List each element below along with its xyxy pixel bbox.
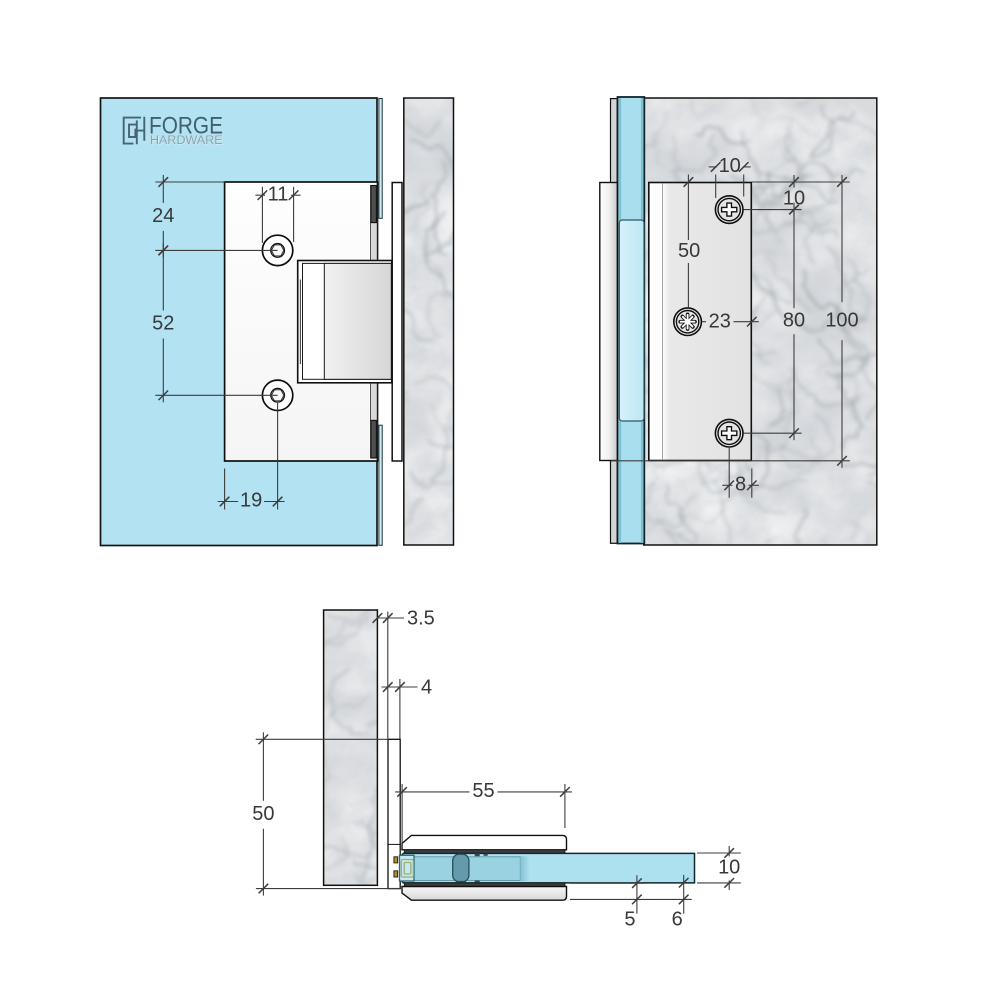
svg-text:10: 10 [719, 155, 741, 177]
svg-text:10: 10 [718, 857, 740, 879]
svg-text:8: 8 [735, 474, 746, 496]
svg-text:80: 80 [783, 309, 805, 331]
svg-text:HARDWARE: HARDWARE [150, 133, 223, 147]
svg-text:11: 11 [268, 183, 289, 205]
svg-text:50: 50 [678, 240, 700, 262]
svg-text:100: 100 [825, 309, 858, 331]
svg-text:55: 55 [472, 780, 494, 802]
svg-text:19: 19 [240, 490, 262, 512]
svg-text:24: 24 [152, 205, 174, 227]
svg-text:3.5: 3.5 [407, 607, 435, 629]
svg-text:52: 52 [152, 313, 174, 335]
svg-text:6: 6 [672, 908, 683, 930]
svg-text:23: 23 [709, 311, 731, 333]
svg-text:50: 50 [252, 803, 274, 825]
svg-text:5: 5 [624, 908, 635, 930]
svg-text:4: 4 [421, 676, 432, 698]
